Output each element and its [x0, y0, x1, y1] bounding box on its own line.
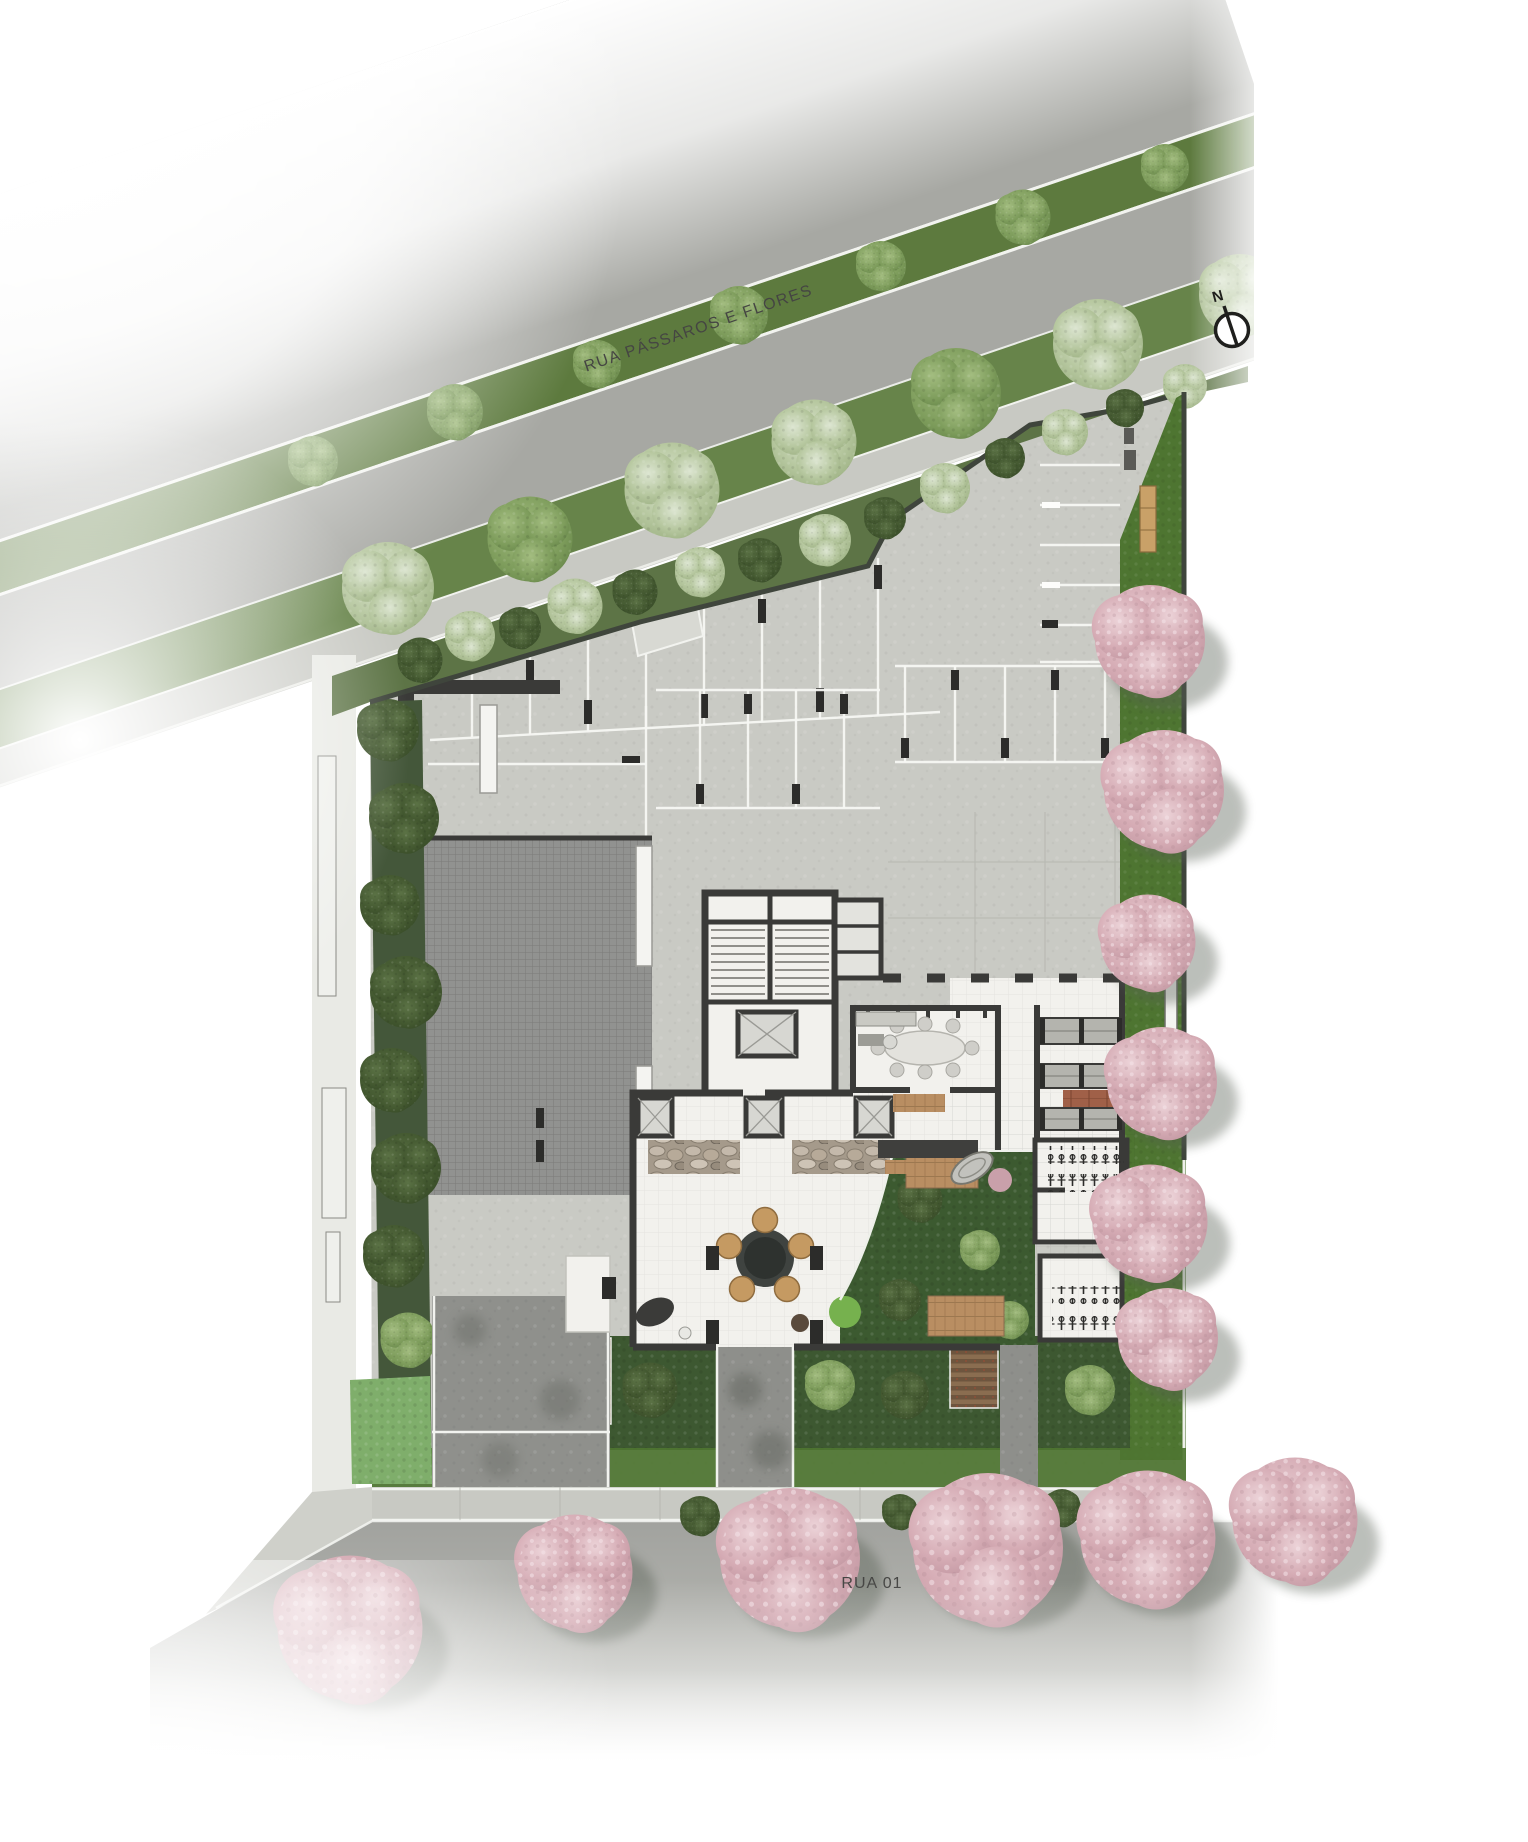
stone-rug — [648, 1140, 740, 1174]
left-utility-pad-2 — [322, 1088, 346, 1218]
utility-box-2 — [1124, 450, 1136, 470]
kitchen-counter-dark — [878, 1140, 978, 1158]
bike-rack — [1048, 1146, 1124, 1164]
bottom-left-fade — [0, 1560, 620, 1842]
left-utility-pad-3 — [326, 1232, 340, 1302]
bench-row-3 — [1040, 1108, 1122, 1130]
bike-rack-3 — [1052, 1286, 1120, 1304]
pouf — [791, 1314, 809, 1332]
left-fade — [0, 420, 440, 1060]
wood-deck-2 — [928, 1296, 1004, 1336]
desk — [858, 1034, 884, 1046]
entry-path — [716, 1347, 794, 1505]
garden-bench — [1140, 486, 1156, 552]
side-table — [679, 1327, 691, 1339]
sideboard — [856, 1012, 916, 1026]
site-plan-canvas: RUA PÁSSAROS E FLORES — [0, 0, 1528, 1842]
stone-rug-2 — [792, 1140, 890, 1174]
utility-box — [1124, 428, 1134, 444]
bench-row — [1040, 1018, 1122, 1044]
kitchen-counter-wood — [893, 1094, 945, 1112]
bike-rack-4 — [1052, 1314, 1120, 1332]
kitchen-island — [885, 1160, 925, 1174]
dining-table — [885, 1031, 965, 1065]
site-plan-drawing: RUA PÁSSAROS E FLORES — [0, 0, 1528, 1842]
